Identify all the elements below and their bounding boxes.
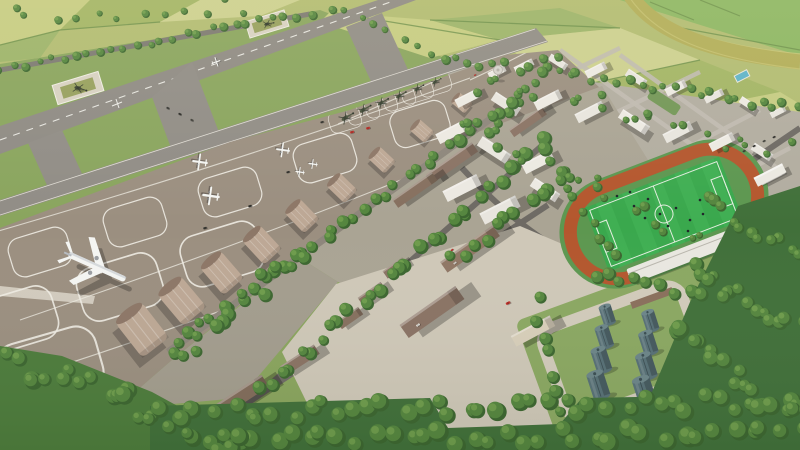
- aerial-render: Aerial 3D architectural rendering of an …: [0, 0, 800, 450]
- airbase-scene: Aerial 3D architectural rendering of an …: [0, 0, 800, 450]
- lighting-overlay: [0, 0, 800, 450]
